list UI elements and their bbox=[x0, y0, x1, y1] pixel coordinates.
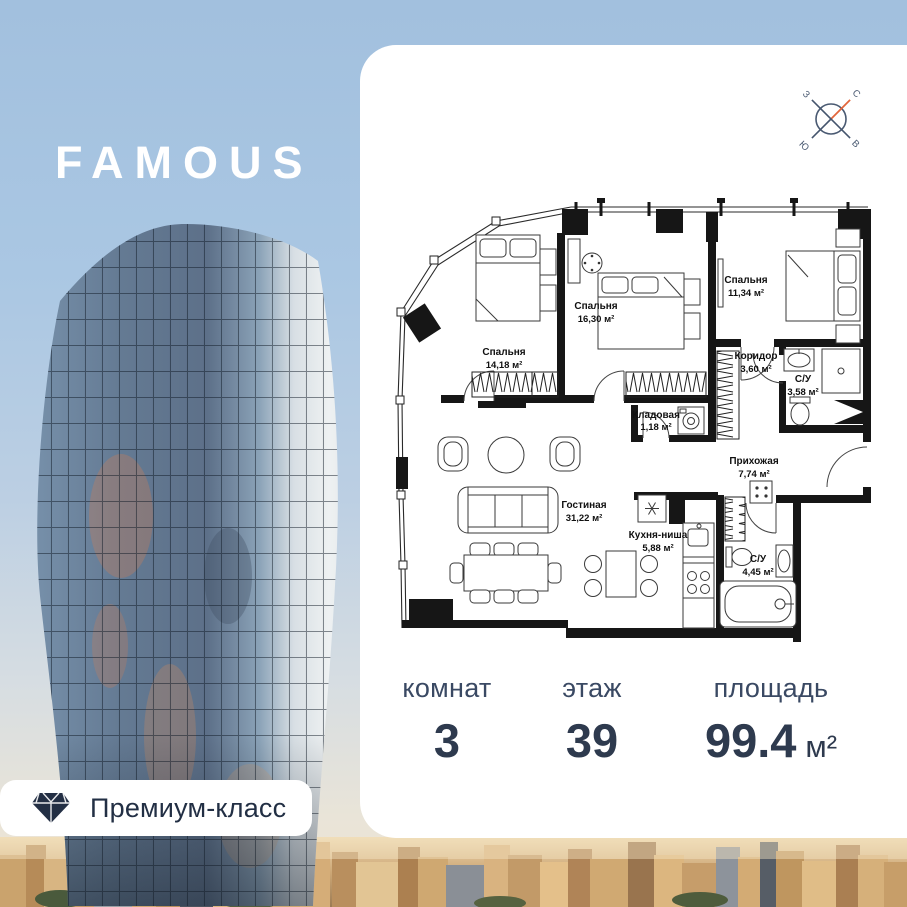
diamond-icon bbox=[30, 790, 72, 826]
kitchen-table bbox=[585, 551, 658, 597]
compass-east-label: В bbox=[849, 138, 861, 150]
room-label: Спальня bbox=[574, 301, 617, 312]
stat-area: площадь 99.4м² bbox=[705, 673, 837, 768]
room-area: 14,18 м² bbox=[486, 360, 523, 371]
room-area: 3,60 м² bbox=[740, 364, 771, 375]
room-area: 3,58 м² bbox=[787, 387, 818, 398]
premium-class-badge[interactable]: Премиум-класс bbox=[0, 780, 312, 836]
room-area: 4,45 м² bbox=[742, 567, 773, 578]
room-label: Гостиная bbox=[561, 500, 606, 511]
stat-area-value: 99.4м² bbox=[705, 713, 837, 768]
room-area: 16,30 м² bbox=[578, 314, 615, 325]
stat-floor-value: 39 bbox=[562, 713, 622, 768]
room-area: 7,74 м² bbox=[738, 469, 769, 480]
washing-machine bbox=[678, 407, 704, 434]
tv-unit bbox=[478, 401, 526, 408]
bed-bedroom-1 bbox=[476, 235, 556, 321]
bed-bedroom-2 bbox=[568, 239, 700, 349]
compass-south-label: Ю bbox=[796, 139, 811, 154]
living-room-furniture bbox=[438, 437, 580, 603]
room-area: 31,22 м² bbox=[566, 513, 603, 524]
stat-floor: этаж 39 bbox=[562, 673, 622, 768]
compass-icon: С В Ю З bbox=[781, 69, 881, 169]
room-label: Спальня bbox=[482, 347, 525, 358]
brand-logo: FAMOUS bbox=[55, 140, 314, 185]
stat-area-number: 99.4 bbox=[705, 714, 796, 767]
room-area: 11,34 м² bbox=[728, 288, 764, 299]
room-label: Прихожая bbox=[729, 456, 779, 467]
room-label: Коридор bbox=[734, 351, 777, 362]
room-label: С/У bbox=[750, 554, 767, 565]
stat-area-unit: м² bbox=[805, 729, 837, 764]
premium-class-label: Премиум-класс bbox=[90, 793, 286, 824]
stat-rooms-value: 3 bbox=[402, 713, 491, 768]
stat-rooms: комнат 3 bbox=[402, 673, 491, 768]
hall-cabinet bbox=[750, 481, 772, 503]
stat-floor-label: этаж bbox=[562, 673, 622, 704]
window-band bbox=[571, 198, 868, 216]
room-area: 1,18 м² bbox=[640, 422, 671, 433]
room-label: Кладовая bbox=[632, 410, 680, 421]
stat-area-label: площадь bbox=[705, 673, 837, 704]
apartment-card[interactable]: С В Ю З bbox=[360, 45, 907, 838]
room-label: С/У bbox=[795, 374, 812, 385]
bed-bedroom-3 bbox=[718, 229, 860, 343]
listing-card: FAMOUS Премиум-класс С В Ю З bbox=[0, 0, 907, 907]
floor-plan: Спальня 14,18 м² Спальня 16,30 м² Спальн… bbox=[386, 195, 898, 653]
room-area: 5,88 м² bbox=[642, 543, 673, 554]
compass-north-label: С bbox=[850, 88, 863, 101]
stat-rooms-label: комнат bbox=[402, 673, 491, 704]
compass-west-label: З bbox=[800, 89, 812, 101]
room-label: Спальня bbox=[724, 275, 767, 286]
room-label: Кухня-ниша bbox=[629, 530, 688, 541]
